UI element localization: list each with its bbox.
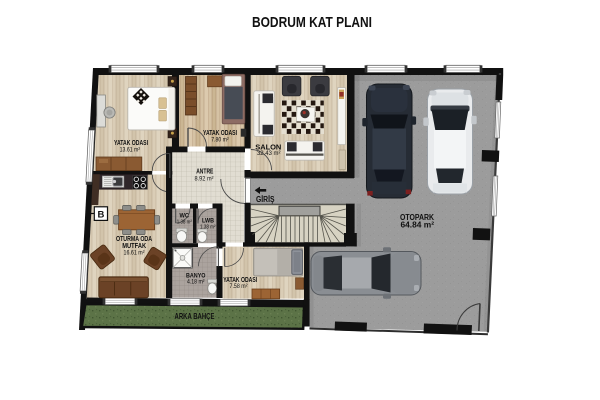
svg-text:7.58 m²: 7.58 m² [230, 283, 249, 290]
svg-text:7.80 m²: 7.80 m² [211, 136, 229, 143]
svg-text:WC: WC [180, 213, 190, 220]
svg-text:1.38 m²: 1.38 m² [177, 220, 192, 226]
svg-text:1.38 m²: 1.38 m² [200, 225, 216, 231]
svg-text:32.43 m²: 32.43 m² [257, 150, 281, 157]
svg-text:8.92 m²: 8.92 m² [195, 175, 215, 182]
svg-text:LWB: LWB [202, 217, 214, 224]
svg-text:16.61 m²: 16.61 m² [124, 249, 145, 256]
svg-text:ARKA BAHÇE: ARKA BAHÇE [175, 312, 215, 321]
svg-text:B: B [97, 209, 104, 220]
svg-text:BANYO: BANYO [186, 273, 206, 280]
svg-text:BODRUM KAT PLANI: BODRUM KAT PLANI [252, 14, 372, 31]
svg-text:13.61 m²: 13.61 m² [120, 146, 141, 153]
svg-text:64.84 m²: 64.84 m² [401, 220, 435, 229]
svg-text:4.18 m²: 4.18 m² [187, 280, 205, 286]
svg-text:GİRİŞ: GİRİŞ [256, 195, 275, 204]
